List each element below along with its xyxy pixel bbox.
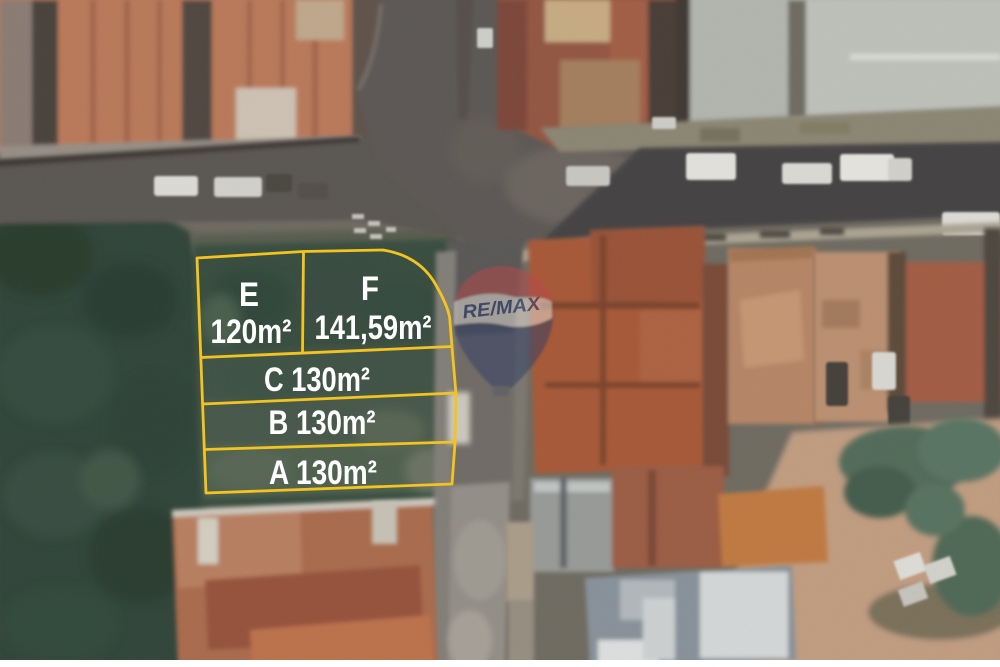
svg-text:120m²: 120m²	[211, 313, 292, 351]
svg-text:E: E	[239, 276, 259, 314]
svg-text:B 130m²: B 130m²	[269, 404, 376, 442]
svg-text:C 130m²: C 130m²	[264, 361, 370, 399]
svg-text:A 130m²: A 130m²	[269, 454, 377, 492]
svg-text:141,59m²: 141,59m²	[315, 309, 432, 347]
svg-text:F: F	[361, 270, 379, 308]
